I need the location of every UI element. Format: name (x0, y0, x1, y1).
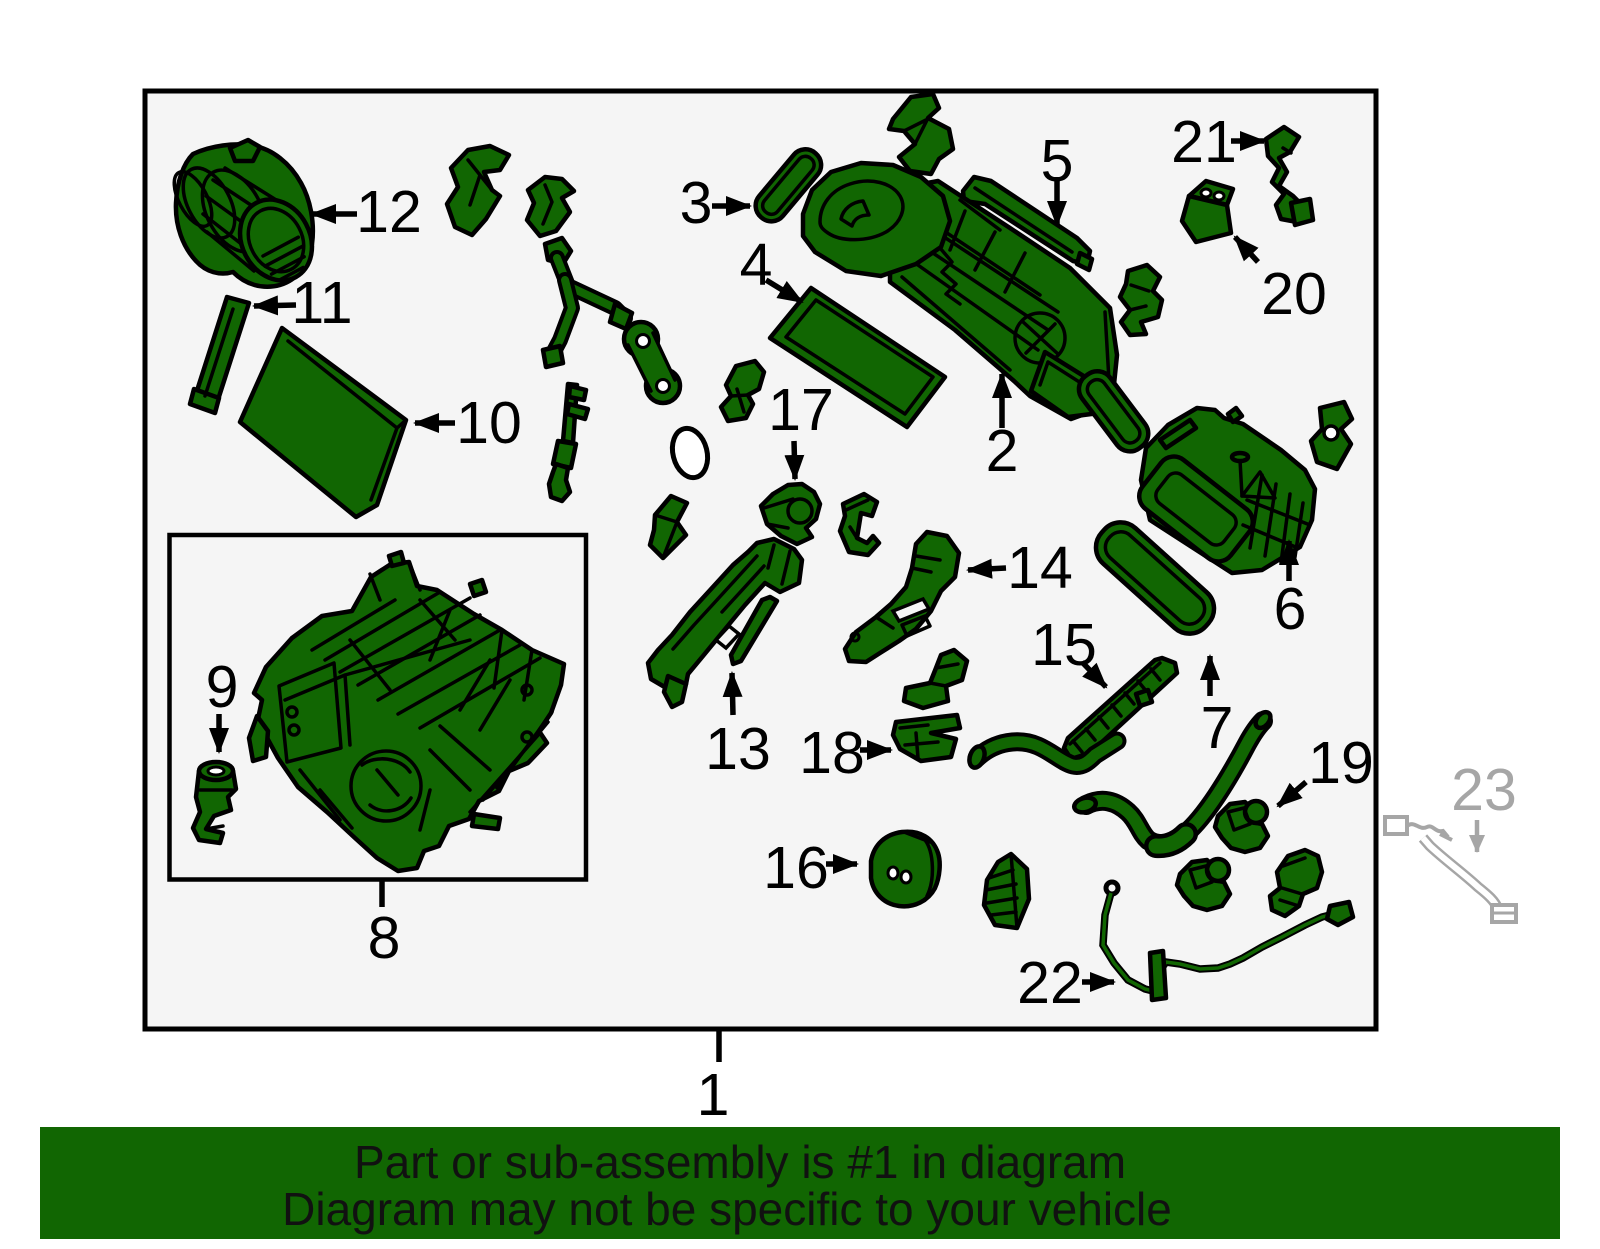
svg-text:4: 4 (740, 232, 773, 298)
svg-text:1: 1 (697, 1062, 730, 1128)
svg-text:8: 8 (368, 905, 401, 971)
svg-text:14: 14 (1007, 535, 1073, 601)
svg-text:18: 18 (799, 720, 865, 786)
svg-text:6: 6 (1274, 576, 1307, 642)
svg-text:16: 16 (763, 835, 829, 901)
svg-text:10: 10 (456, 390, 522, 456)
svg-text:Diagram may not be specific to: Diagram may not be specific to your vehi… (282, 1183, 1172, 1235)
svg-text:23: 23 (1451, 757, 1517, 823)
svg-text:3: 3 (680, 170, 713, 236)
svg-text:21: 21 (1171, 109, 1237, 175)
svg-text:9: 9 (206, 654, 239, 720)
svg-text:13: 13 (705, 716, 771, 782)
svg-text:Part or sub-assembly is #1 in: Part or sub-assembly is #1 in diagram (354, 1136, 1126, 1188)
svg-text:22: 22 (1017, 950, 1083, 1016)
svg-text:20: 20 (1261, 261, 1327, 327)
svg-text:12: 12 (356, 179, 422, 245)
svg-text:7: 7 (1201, 695, 1234, 761)
svg-text:19: 19 (1308, 730, 1374, 796)
svg-text:11: 11 (291, 270, 352, 336)
svg-text:17: 17 (768, 377, 834, 443)
